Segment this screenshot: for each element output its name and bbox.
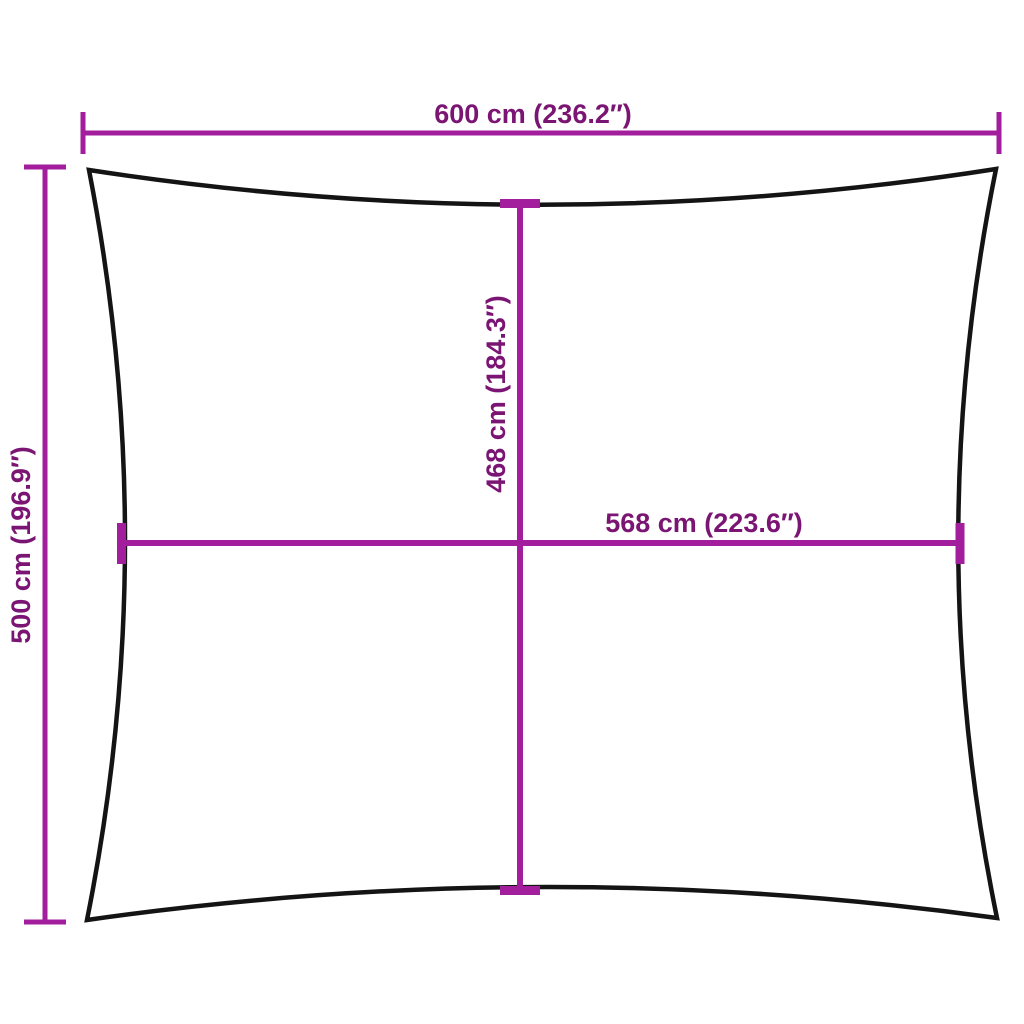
top-dimension-label: 600 cm (236.2″) — [434, 99, 632, 129]
left-dimension-label: 500 cm (196.9″) — [6, 446, 36, 644]
inner-vertical-dimension-label: 468 cm (184.3″) — [481, 295, 511, 493]
dimension-diagram: 600 cm (236.2″) 500 cm (196.9″) 468 cm (… — [0, 0, 1024, 1024]
diagram-canvas: 600 cm (236.2″) 500 cm (196.9″) 468 cm (… — [0, 0, 1024, 1024]
inner-horizontal-dimension-label: 568 cm (223.6″) — [605, 508, 803, 538]
inner-horizontal-dimension — [121, 523, 960, 564]
